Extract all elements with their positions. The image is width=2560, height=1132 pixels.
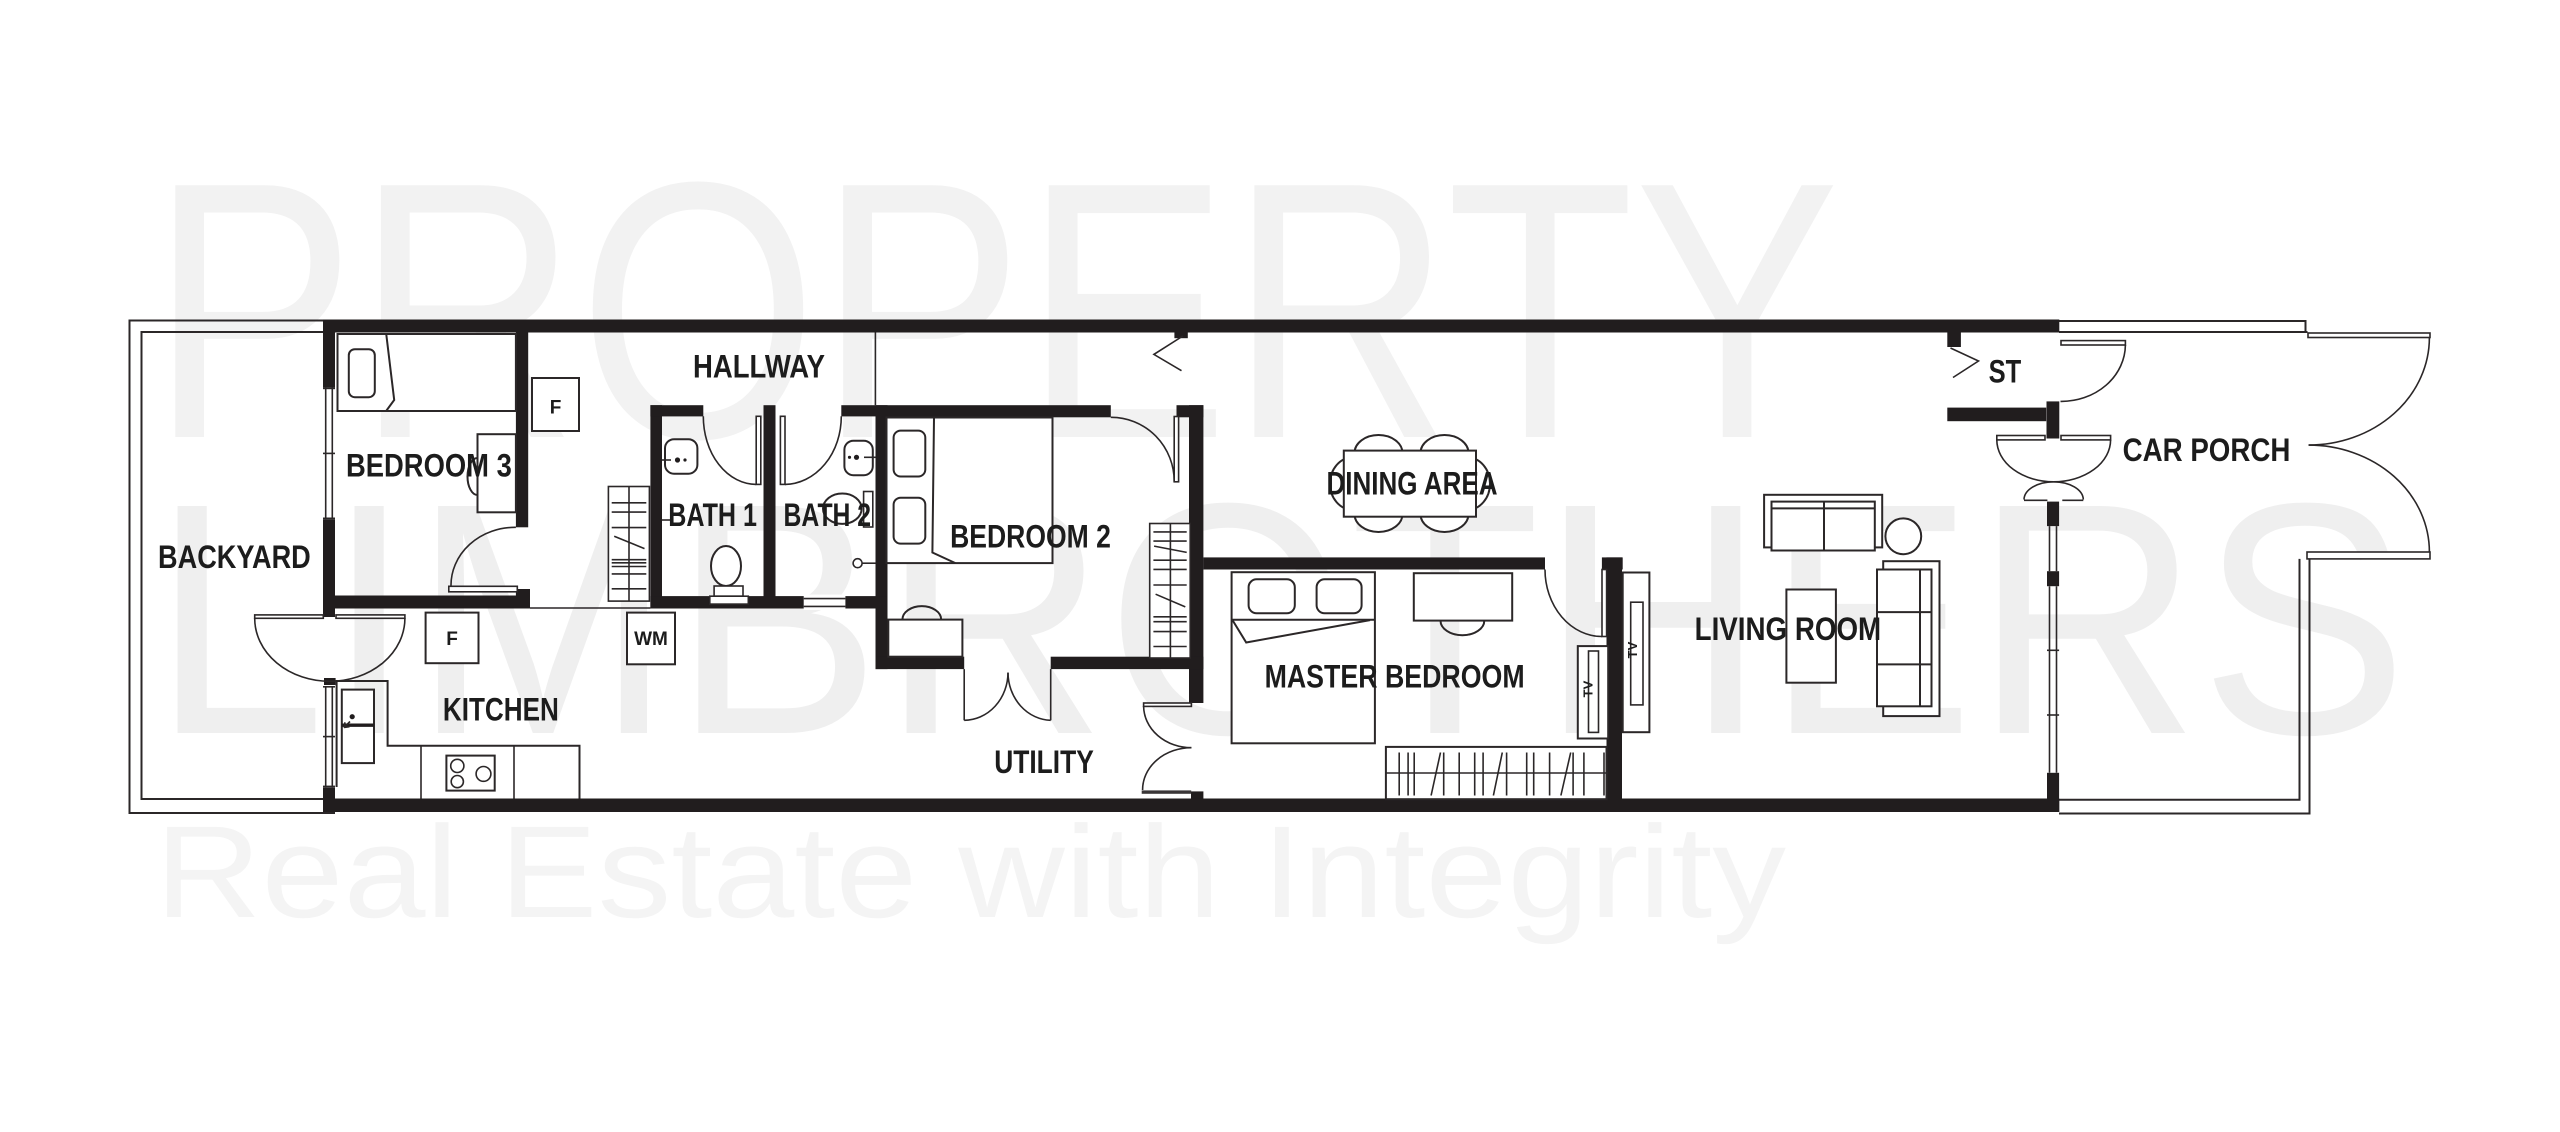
svg-text:UTILITY: UTILITY — [994, 744, 1094, 780]
svg-text:DINING AREA: DINING AREA — [1327, 466, 1498, 502]
svg-text:BEDROOM 2: BEDROOM 2 — [950, 519, 1111, 555]
svg-text:LIVING ROOM: LIVING ROOM — [1695, 611, 1882, 647]
svg-text:BATH 2: BATH 2 — [784, 497, 872, 533]
svg-text:BEDROOM 3: BEDROOM 3 — [346, 448, 512, 484]
svg-text:ST: ST — [1989, 354, 2022, 390]
svg-text:KITCHEN: KITCHEN — [443, 692, 559, 728]
svg-text:BACKYARD: BACKYARD — [158, 539, 311, 575]
svg-text:Real Estate with Integrity: Real Estate with Integrity — [155, 798, 1787, 945]
svg-text:MASTER BEDROOM: MASTER BEDROOM — [1265, 659, 1525, 695]
svg-text:CAR PORCH: CAR PORCH — [2123, 432, 2291, 468]
svg-text:TV: TV — [1625, 641, 1640, 658]
svg-text:BATH 1: BATH 1 — [668, 497, 757, 533]
svg-text:F: F — [446, 629, 458, 650]
svg-text:HALLWAY: HALLWAY — [693, 349, 825, 385]
svg-text:WM: WM — [634, 629, 668, 650]
svg-text:TV: TV — [1580, 680, 1595, 697]
svg-text:F: F — [550, 398, 562, 419]
